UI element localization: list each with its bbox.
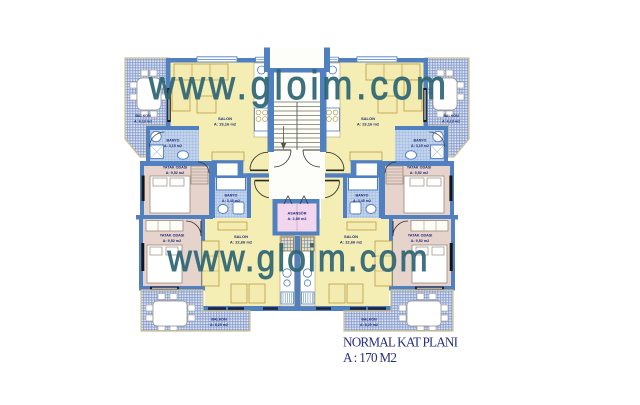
svg-text:BANYO: BANYO [356, 194, 369, 198]
svg-text:A: 3,45 m2: A: 3,45 m2 [353, 199, 371, 203]
svg-text:A: 23,16 m2: A: 23,16 m2 [357, 121, 380, 126]
svg-text:NORMAL KAT PLANI: NORMAL KAT PLANI [343, 335, 458, 350]
svg-text:A: 23,16 m2: A: 23,16 m2 [214, 121, 237, 126]
svg-text:A : 170 M2: A : 170 M2 [343, 350, 397, 365]
svg-text:YATAK ODASI: YATAK ODASI [407, 166, 432, 170]
svg-text:A: 8,20 m2: A: 8,20 m2 [210, 323, 228, 327]
svg-text:BALKON: BALKON [135, 114, 151, 118]
svg-text:A: 9,52 m2: A: 9,52 m2 [166, 171, 184, 175]
svg-text:A: 8,20 m2: A: 8,20 m2 [360, 323, 378, 327]
svg-text:www.gloim.com: www.gloim.com [167, 237, 428, 279]
svg-text:A: 3,45 m2: A: 3,45 m2 [222, 199, 240, 203]
svg-text:BALKON: BALKON [443, 114, 459, 118]
svg-text:A: 9,52 m2: A: 9,52 m2 [410, 171, 428, 175]
svg-text:www.gloim.com: www.gloim.com [148, 63, 446, 109]
svg-text:BANYO: BANYO [167, 139, 180, 143]
svg-text:A: 6,13 m2: A: 6,13 m2 [442, 119, 460, 123]
svg-text:BANYO: BANYO [414, 139, 427, 143]
svg-text:A: 2,80 m2: A: 2,80 m2 [288, 217, 307, 221]
svg-text:A: 6,13 m2: A: 6,13 m2 [134, 119, 152, 123]
svg-text:A: 3,15 m2: A: 3,15 m2 [411, 144, 429, 148]
svg-text:BANYO: BANYO [225, 194, 238, 198]
svg-text:SALON: SALON [361, 116, 375, 121]
svg-text:BALKON: BALKON [211, 318, 227, 322]
svg-text:A: 3,15 m2: A: 3,15 m2 [164, 144, 182, 148]
svg-text:YATAK ODASI: YATAK ODASI [163, 166, 188, 170]
svg-text:BALKON: BALKON [361, 318, 377, 322]
svg-text:ASANSÖR: ASANSÖR [288, 211, 307, 216]
svg-text:SALON: SALON [218, 116, 232, 121]
